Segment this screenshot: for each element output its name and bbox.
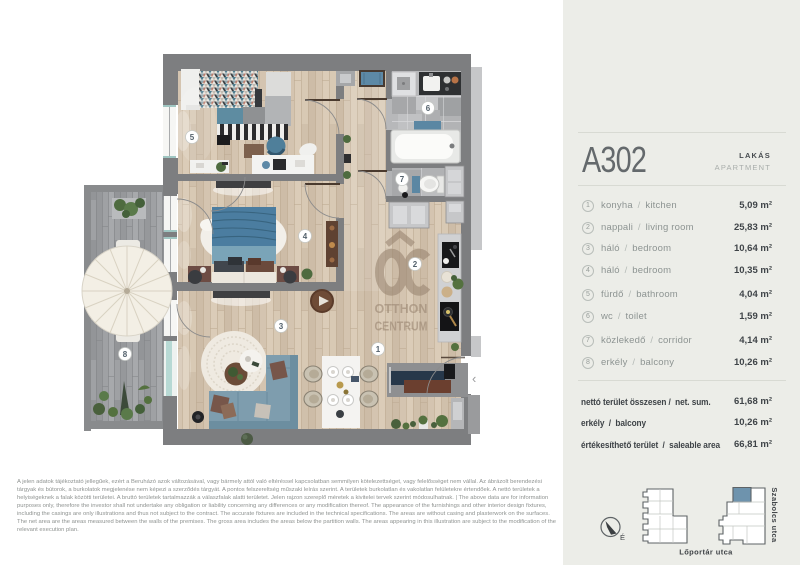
svg-text:6: 6 — [426, 104, 431, 113]
svg-text:1: 1 — [376, 345, 381, 354]
svg-text:Lőportár utca: Lőportár utca — [679, 548, 733, 557]
svg-text:8: 8 — [123, 350, 128, 359]
svg-text:2: 2 — [413, 260, 418, 269]
svg-text:Szabolcs utca: Szabolcs utca — [770, 487, 779, 543]
svg-text:‹: ‹ — [472, 371, 476, 386]
svg-text:5: 5 — [190, 133, 195, 142]
svg-text:7: 7 — [400, 175, 405, 184]
svg-text:4: 4 — [303, 232, 308, 241]
svg-text:CENTRUM: CENTRUM — [375, 320, 428, 334]
svg-text:3: 3 — [279, 322, 284, 331]
svg-text:É: É — [620, 533, 625, 542]
svg-text:OTTHON: OTTHON — [375, 302, 428, 316]
